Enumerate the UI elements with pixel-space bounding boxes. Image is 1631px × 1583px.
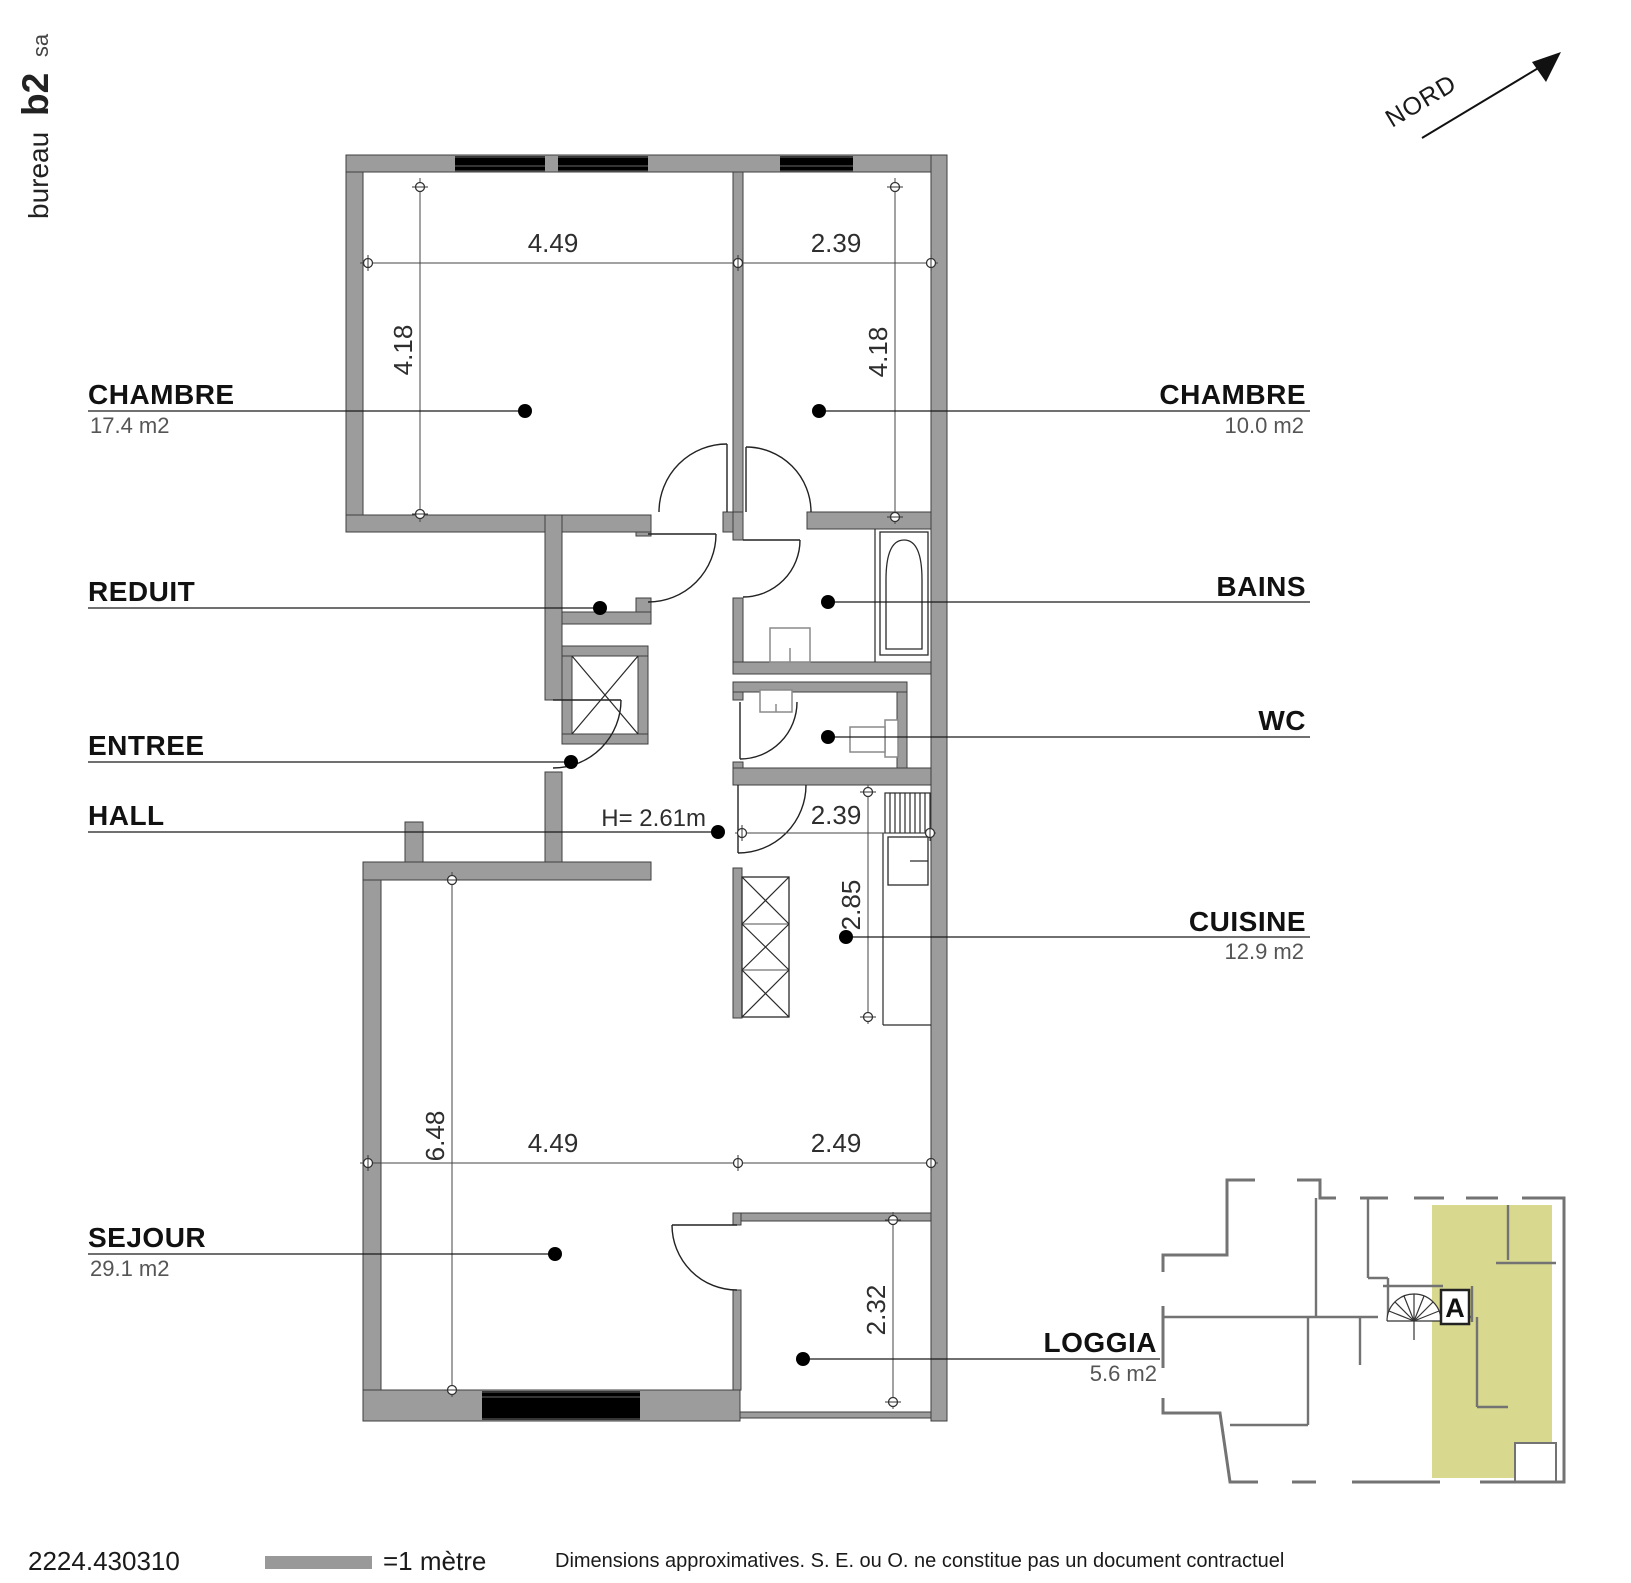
dim-chambre2-depth: 4.18	[863, 327, 893, 378]
dim-cuisine-depth: 2.85	[836, 880, 866, 931]
label-bains: BAINS	[1216, 571, 1306, 602]
dim-cuisine-width: 2.39	[811, 800, 862, 830]
north-arrow: NORD	[1381, 52, 1561, 138]
key-plan-unit-label: A	[1445, 1293, 1465, 1323]
key-plan-window	[1498, 1194, 1522, 1202]
ceiling-height: H= 2.61m	[601, 805, 706, 832]
windows	[455, 156, 853, 1420]
label-loggia: LOGGIA	[1044, 1327, 1157, 1358]
office-name-suffix: sa	[28, 33, 53, 57]
kitchen-appliance	[885, 793, 930, 833]
key-plan-window	[1159, 1272, 1167, 1306]
disclaimer: Dimensions approximatives. S. E. ou O. n…	[555, 1550, 1284, 1572]
dim-sejour-depth: 6.48	[420, 1111, 450, 1162]
office-branding: bureau b2 sa	[15, 33, 56, 219]
window-chambre1-a	[455, 156, 545, 171]
window-sejour	[482, 1391, 640, 1420]
plan-reference: 2224.430310	[28, 1546, 180, 1576]
scale-bar	[265, 1556, 372, 1569]
office-name-bold: b2	[15, 73, 56, 116]
north-label: NORD	[1381, 69, 1462, 133]
area-cuisine: 12.9 m2	[1225, 939, 1305, 964]
bains-sink	[770, 628, 810, 662]
dim-chambre1-width: 4.49	[528, 228, 579, 258]
door-bains	[743, 540, 800, 597]
scale-label: =1 mètre	[383, 1546, 486, 1576]
area-sejour: 29.1 m2	[90, 1256, 170, 1281]
dim-loggia-depth: 2.32	[861, 1285, 891, 1336]
door-cuisine	[738, 785, 806, 853]
wardrobe-cabinets	[742, 877, 789, 1017]
key-plan-window	[1336, 1194, 1360, 1202]
wc-sink	[760, 690, 792, 712]
area-chambre1: 17.4 m2	[90, 413, 170, 438]
walls	[346, 155, 947, 1421]
dim-sejour-width: 4.49	[528, 1128, 579, 1158]
bathtub	[875, 529, 928, 662]
key-plan-window	[1444, 1194, 1466, 1202]
label-chambre2: CHAMBRE	[1159, 379, 1306, 410]
key-plan-window	[1258, 1478, 1292, 1486]
key-plan-window	[1316, 1478, 1352, 1486]
dimension-lines: 4.49 2.39 4.18 4.18 2.39 2.85 6.48 4.49 …	[360, 178, 938, 1409]
office-name: bureau	[23, 132, 54, 219]
dim-chambre2-width: 2.39	[811, 228, 862, 258]
label-chambre1: CHAMBRE	[88, 379, 235, 410]
area-loggia: 5.6 m2	[1090, 1361, 1157, 1386]
door-chambre1	[659, 444, 727, 512]
door-loggia	[672, 1225, 737, 1290]
door-chambre2	[746, 447, 811, 512]
dim-loggia-width: 2.49	[811, 1128, 862, 1158]
technical-shaft	[572, 656, 638, 734]
key-plan-loggia-notch	[1515, 1443, 1556, 1482]
north-arrow-head-icon	[1532, 52, 1561, 82]
toilet	[850, 720, 898, 757]
label-entree: ENTREE	[88, 730, 205, 761]
door-reduit	[648, 534, 716, 602]
label-reduit: REDUIT	[88, 576, 195, 607]
dim-chambre1-depth: 4.18	[388, 325, 418, 376]
key-plan-window	[1440, 1478, 1480, 1486]
floor-plan: bureau b2 sa NORD	[0, 0, 1631, 1583]
key-plan-window	[1388, 1194, 1414, 1202]
room-labels: CHAMBRE 17.4 m2 CHAMBRE 10.0 m2 REDUIT B…	[88, 379, 1310, 1386]
label-cuisine: CUISINE	[1189, 906, 1306, 937]
label-sejour: SEJOUR	[88, 1222, 206, 1253]
key-plan-window	[1159, 1368, 1167, 1398]
area-chambre2: 10.0 m2	[1225, 413, 1305, 438]
key-plan: A	[1159, 1176, 1564, 1486]
window-chambre1-b	[558, 156, 648, 171]
key-plan-window	[1255, 1176, 1297, 1184]
kitchen-counter	[883, 833, 931, 1025]
label-wc: WC	[1258, 705, 1306, 736]
label-hall: HALL	[88, 800, 165, 831]
window-chambre2	[780, 156, 853, 171]
footer: 2224.430310 =1 mètre Dimensions approxim…	[28, 1546, 1284, 1576]
key-plan-highlighted-unit	[1432, 1205, 1552, 1478]
